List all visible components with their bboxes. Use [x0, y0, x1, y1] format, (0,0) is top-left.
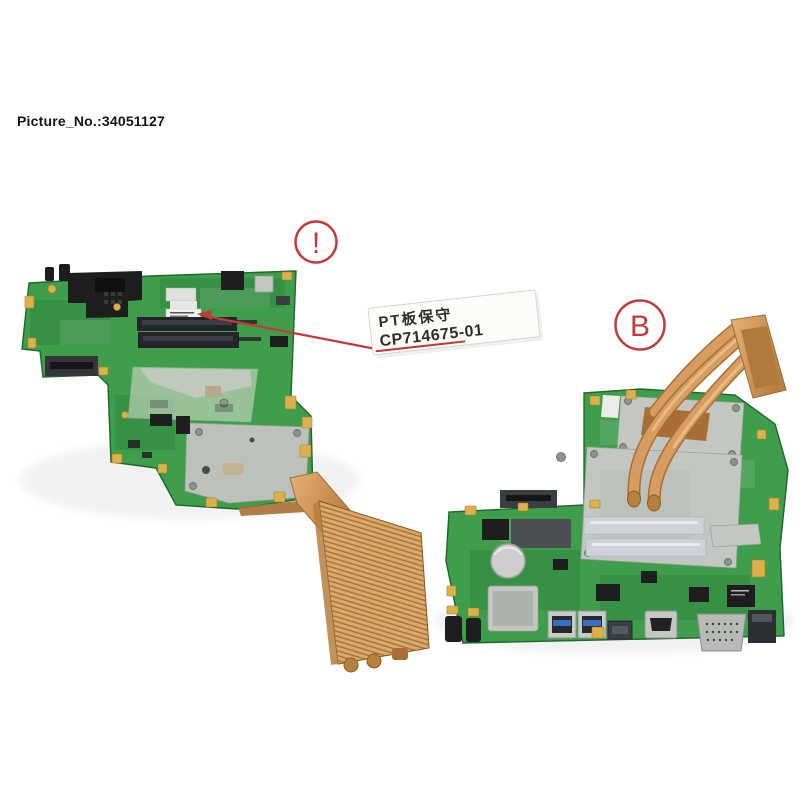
- coin-battery: [491, 544, 525, 578]
- screw-post: [122, 412, 129, 419]
- ethernet-port: [748, 610, 776, 643]
- vga-port: [697, 614, 746, 651]
- board-connector: [176, 416, 190, 434]
- pcb-trace: [60, 320, 110, 345]
- fin-texture: [319, 501, 429, 664]
- sticker-print: [170, 316, 188, 318]
- sd-card-slot: [488, 586, 538, 631]
- variant-mark: B: [630, 310, 650, 343]
- chip: [689, 587, 709, 602]
- pipe-end: [367, 654, 381, 668]
- component: [215, 404, 233, 412]
- chip: [596, 584, 620, 601]
- chip: [142, 452, 152, 458]
- sticker-print: [170, 312, 194, 314]
- pipe-end: [648, 495, 661, 511]
- usb-port: [548, 611, 576, 638]
- board-connector: [276, 296, 290, 305]
- chip: [641, 571, 657, 583]
- chip: [482, 519, 509, 540]
- screw-post: [48, 285, 56, 293]
- product-photo: Picture_No.:34051127: [0, 0, 800, 800]
- chip: [553, 559, 568, 570]
- standoff: [205, 386, 221, 397]
- standoff-screw: [557, 453, 566, 462]
- hdmi-port: [645, 611, 677, 638]
- board-connector: [150, 414, 172, 426]
- pipe-end: [344, 658, 358, 672]
- pipe-end: [628, 491, 641, 507]
- motherboard-illustration: ! B PT板保守 CP714675-01: [0, 0, 800, 800]
- fpc-connector: [166, 288, 196, 301]
- pipe-end: [392, 648, 408, 660]
- board-connector: [221, 271, 244, 290]
- board-connector: [270, 336, 288, 347]
- board-connector: [255, 276, 273, 292]
- right-motherboard: [445, 315, 788, 651]
- caution-mark: !: [312, 227, 320, 260]
- sim-slot: [710, 524, 761, 547]
- card-slot-opening: [95, 278, 125, 292]
- bios-chip: [727, 585, 755, 607]
- cpu-chip: [511, 519, 571, 548]
- caution-annotation: !: [296, 222, 337, 263]
- displayport: [608, 621, 632, 639]
- board-sticker: [170, 301, 197, 309]
- service-part-label: PT板保守 CP714675-01: [368, 290, 544, 359]
- component: [150, 400, 168, 408]
- variant-b-annotation: B: [616, 301, 665, 350]
- plastic-tab: [601, 395, 620, 418]
- emi-shield: [185, 423, 309, 503]
- screw-post: [114, 304, 121, 311]
- sata-slot: [506, 495, 551, 501]
- sata-connector: [45, 356, 98, 376]
- antenna-connector: [45, 267, 54, 281]
- chip: [128, 440, 140, 448]
